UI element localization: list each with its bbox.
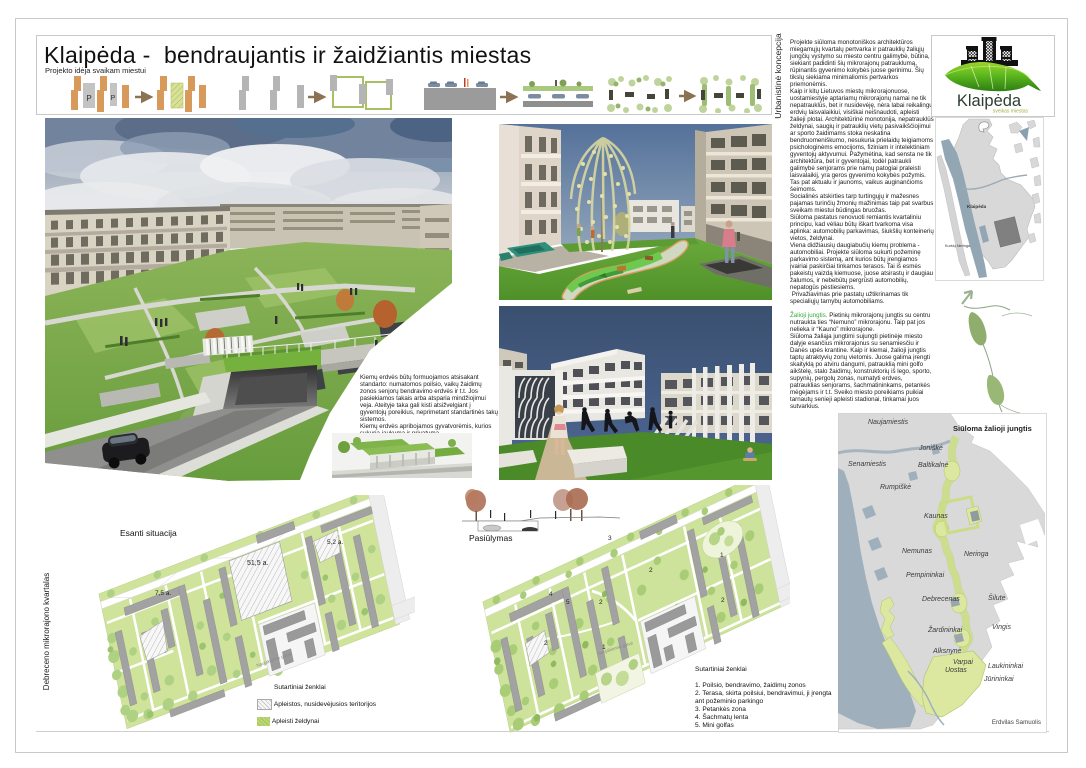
- svg-text:2: 2: [544, 640, 548, 647]
- svg-text:Vingis: Vingis: [992, 624, 1011, 631]
- svg-text:Debrecenas: Debrecenas: [922, 596, 960, 603]
- svg-text:Naujamiestis: Naujamiestis: [868, 419, 909, 426]
- svg-text:Joniškė: Joniškė: [918, 445, 943, 452]
- svg-text:Žardininkai: Žardininkai: [927, 625, 963, 634]
- svg-text:Siūloma žalioji jungtis: Siūloma žalioji jungtis: [953, 424, 1032, 433]
- svg-text:5: 5: [566, 599, 570, 606]
- svg-text:Kuršių Neringa: Kuršių Neringa: [945, 244, 971, 248]
- svg-text:3: 3: [608, 535, 612, 542]
- svg-text:Jūrininkai: Jūrininkai: [983, 676, 1014, 683]
- svg-text:Alksnynė: Alksnynė: [932, 648, 962, 655]
- svg-text:Kaunas: Kaunas: [924, 513, 948, 520]
- svg-text:sveikas miestas: sveikas miestas: [993, 109, 1029, 115]
- svg-text:Nemunas: Nemunas: [902, 548, 932, 555]
- svg-text:5,2 a.: 5,2 a.: [327, 539, 343, 546]
- svg-text:2: 2: [649, 567, 653, 574]
- svg-text:1: 1: [720, 552, 724, 559]
- svg-text:Senamiestis: Senamiestis: [848, 461, 887, 468]
- svg-text:P: P: [111, 95, 116, 102]
- svg-text:2: 2: [599, 599, 603, 606]
- svg-text:Klaipėda: Klaipėda: [957, 92, 1022, 110]
- svg-text:Pempininkai: Pempininkai: [906, 572, 945, 579]
- svg-text:Varpai: Varpai: [953, 659, 973, 666]
- svg-text:Baltikalnė: Baltikalnė: [918, 462, 948, 469]
- svg-text:Klaipėda: Klaipėda: [967, 204, 987, 209]
- svg-text:Rumpiškė: Rumpiškė: [880, 484, 911, 491]
- svg-text:P: P: [86, 94, 91, 103]
- svg-text:4: 4: [549, 591, 553, 598]
- svg-text:51,5 a.: 51,5 a.: [247, 560, 268, 567]
- svg-text:7,5 a.: 7,5 a.: [155, 590, 171, 597]
- svg-text:Neringa: Neringa: [964, 551, 989, 558]
- svg-text:Uostas: Uostas: [945, 667, 967, 674]
- svg-text:Laukininkai: Laukininkai: [988, 663, 1023, 670]
- svg-text:2: 2: [721, 597, 725, 604]
- svg-text:Erdvilas Samuolis: Erdvilas Samuolis: [992, 719, 1041, 726]
- svg-text:Šilutė: Šilutė: [988, 593, 1006, 602]
